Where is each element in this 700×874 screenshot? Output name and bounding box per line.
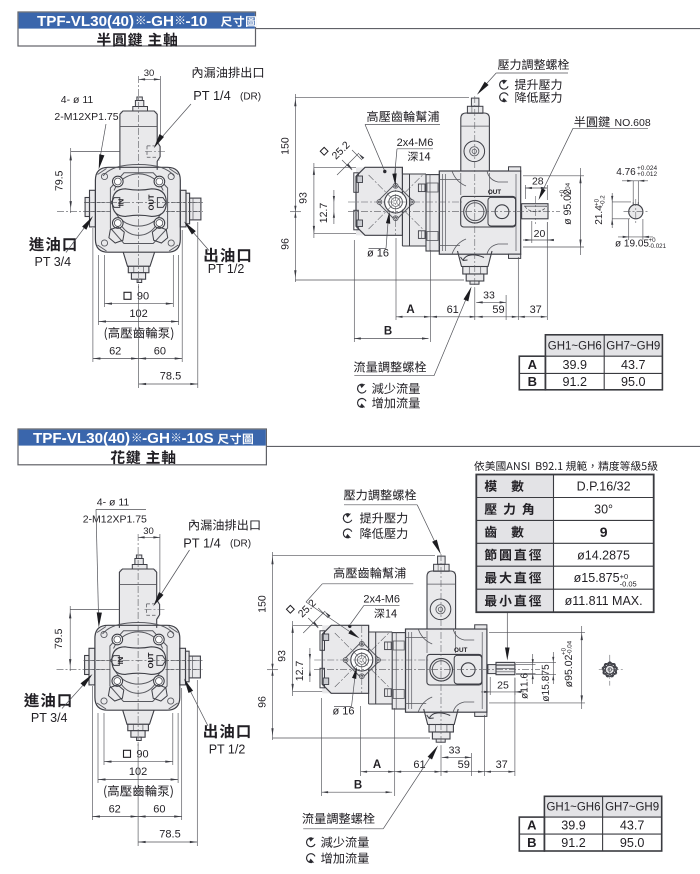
svg-text:A: A [527, 818, 537, 833]
svg-text:59: 59 [492, 304, 504, 316]
svg-text:30: 30 [144, 68, 155, 79]
svg-text:39.9: 39.9 [563, 358, 588, 372]
svg-text:60: 60 [153, 804, 165, 816]
svg-text:30: 30 [143, 526, 154, 537]
svg-text:ø11.811 MAX.: ø11.811 MAX. [565, 594, 643, 608]
svg-text:28: 28 [532, 176, 544, 188]
svg-text:ø 19.05: ø 19.05 [615, 239, 649, 250]
svg-text:78.5: 78.5 [159, 829, 180, 841]
svg-text:TPF-VL30(40): TPF-VL30(40) [33, 430, 130, 447]
svg-text:59: 59 [458, 759, 470, 771]
svg-text:GH7~GH9: GH7~GH9 [605, 802, 659, 814]
svg-text:61: 61 [413, 759, 425, 771]
svg-text:PT 1/2: PT 1/2 [209, 743, 246, 757]
svg-text:95.0: 95.0 [621, 375, 646, 389]
svg-text:2x4-M6: 2x4-M6 [397, 137, 434, 149]
svg-text:-GH: -GH [142, 430, 170, 447]
svg-text:B: B [527, 835, 536, 850]
svg-text:A: A [406, 304, 414, 316]
svg-text:37: 37 [496, 759, 508, 771]
svg-text:43.7: 43.7 [620, 819, 645, 833]
svg-text:43.7: 43.7 [621, 358, 646, 372]
svg-text:20: 20 [534, 228, 546, 240]
svg-text:B: B [354, 780, 362, 792]
svg-text:25: 25 [497, 680, 509, 692]
svg-text:-10: -10 [186, 13, 208, 30]
svg-text:4.76: 4.76 [616, 167, 636, 178]
svg-text:GH1~GH6: GH1~GH6 [546, 802, 600, 814]
svg-text:GH7~GH9: GH7~GH9 [606, 341, 660, 353]
svg-text:33: 33 [449, 745, 461, 757]
svg-text:D.P.16/32: D.P.16/32 [577, 480, 631, 494]
svg-text:PT 3/4: PT 3/4 [31, 711, 68, 725]
svg-text:B: B [528, 374, 537, 389]
svg-text:A: A [528, 357, 538, 372]
svg-text:91.2: 91.2 [563, 375, 588, 389]
svg-text:4- ø 11: 4- ø 11 [97, 497, 130, 509]
svg-text:62: 62 [109, 804, 121, 816]
svg-text:OUT: OUT [454, 647, 467, 654]
svg-text:ø 16: ø 16 [332, 706, 354, 718]
svg-text:(DR): (DR) [230, 539, 251, 550]
svg-text:91.2: 91.2 [561, 836, 586, 850]
svg-text:2-M12XP1.75: 2-M12XP1.75 [54, 111, 118, 123]
svg-text:-GH: -GH [146, 13, 174, 30]
svg-text:78.5: 78.5 [160, 371, 181, 383]
svg-text:OUT: OUT [488, 189, 501, 196]
svg-text:4- ø 11: 4- ø 11 [61, 94, 94, 106]
svg-text:B: B [384, 326, 392, 338]
svg-text:30°: 30° [594, 503, 613, 517]
svg-text:9: 9 [600, 524, 608, 540]
svg-text:33: 33 [483, 290, 495, 302]
svg-text:NO.608: NO.608 [615, 117, 651, 129]
svg-text:-0.05: -0.05 [620, 579, 637, 588]
svg-text:PT 1/4: PT 1/4 [193, 88, 230, 103]
svg-text:-10S: -10S [182, 430, 214, 447]
svg-text:A: A [373, 759, 381, 771]
svg-text:60: 60 [154, 346, 166, 358]
svg-text:62: 62 [109, 346, 121, 358]
svg-text:GH1~GH6: GH1~GH6 [548, 341, 602, 353]
svg-text:ø15.875: ø15.875 [574, 571, 620, 585]
svg-text:39.9: 39.9 [561, 819, 586, 833]
svg-text:95.0: 95.0 [620, 836, 645, 850]
svg-text:-0.021: -0.021 [649, 243, 667, 250]
svg-text:37: 37 [530, 304, 542, 316]
svg-text:2-M12XP1.75: 2-M12XP1.75 [83, 514, 147, 526]
svg-text:PT 1/4: PT 1/4 [183, 536, 220, 551]
svg-text:2x4-M6: 2x4-M6 [363, 594, 400, 606]
svg-text:ø14.2875: ø14.2875 [577, 548, 630, 562]
svg-text:ø 16: ø 16 [367, 248, 389, 260]
svg-text:PT 1/2: PT 1/2 [208, 262, 245, 276]
svg-text:61: 61 [447, 304, 459, 316]
svg-text:(DR): (DR) [240, 92, 261, 103]
svg-text:PT 3/4: PT 3/4 [34, 255, 71, 269]
svg-text:TPF-VL30(40): TPF-VL30(40) [37, 13, 134, 30]
svg-text:+0.012: +0.012 [637, 171, 657, 178]
